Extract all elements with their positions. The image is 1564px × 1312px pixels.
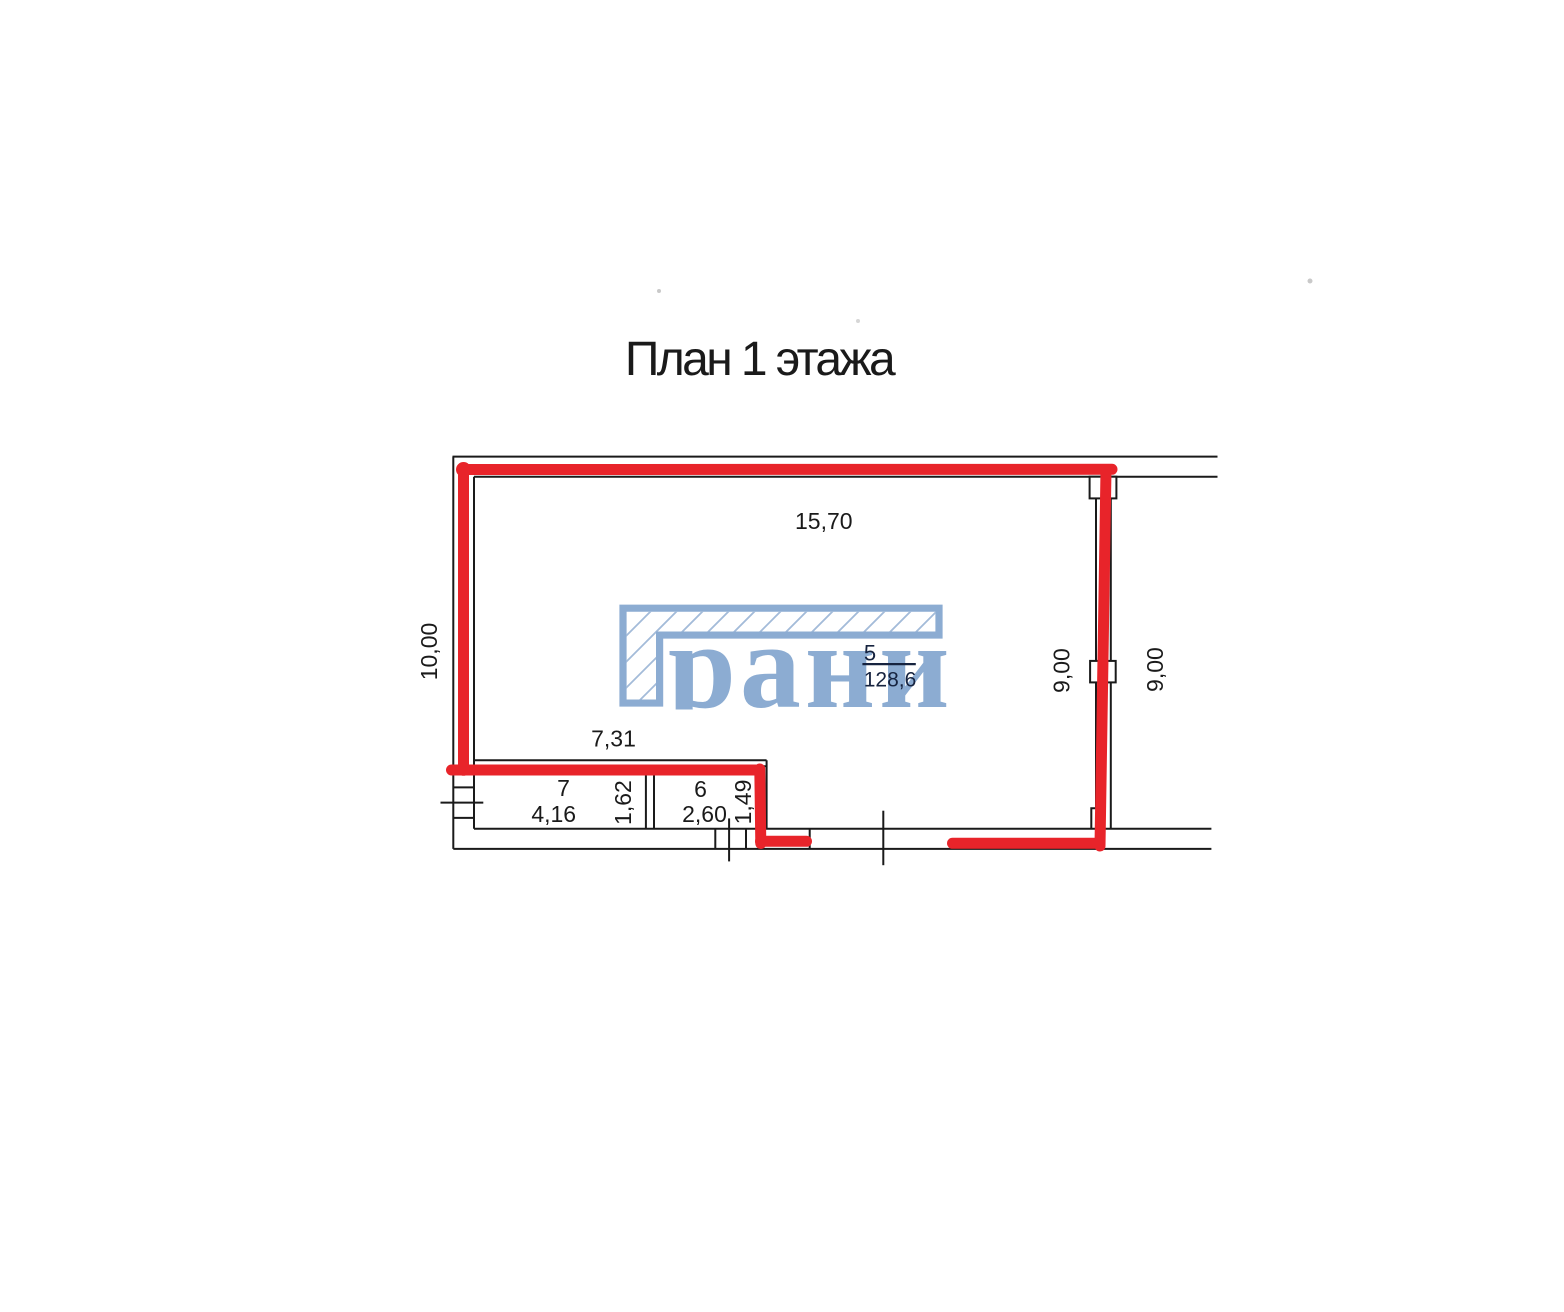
- svg-text:1,49: 1,49: [730, 780, 756, 825]
- svg-text:9,00: 9,00: [1142, 647, 1168, 692]
- svg-text:4,16: 4,16: [531, 801, 576, 827]
- svg-text:6: 6: [694, 776, 707, 802]
- svg-text:1,62: 1,62: [610, 780, 636, 825]
- svg-text:План 1 этажа: План 1 этажа: [625, 333, 896, 386]
- svg-text:2,60: 2,60: [682, 801, 727, 827]
- svg-text:7,31: 7,31: [591, 726, 636, 752]
- svg-text:7: 7: [557, 775, 570, 801]
- svg-text:10,00: 10,00: [416, 623, 442, 681]
- svg-text:128,6: 128,6: [864, 669, 917, 692]
- svg-text:5: 5: [864, 641, 876, 666]
- svg-text:9,00: 9,00: [1049, 648, 1075, 693]
- svg-text:15,70: 15,70: [795, 508, 853, 534]
